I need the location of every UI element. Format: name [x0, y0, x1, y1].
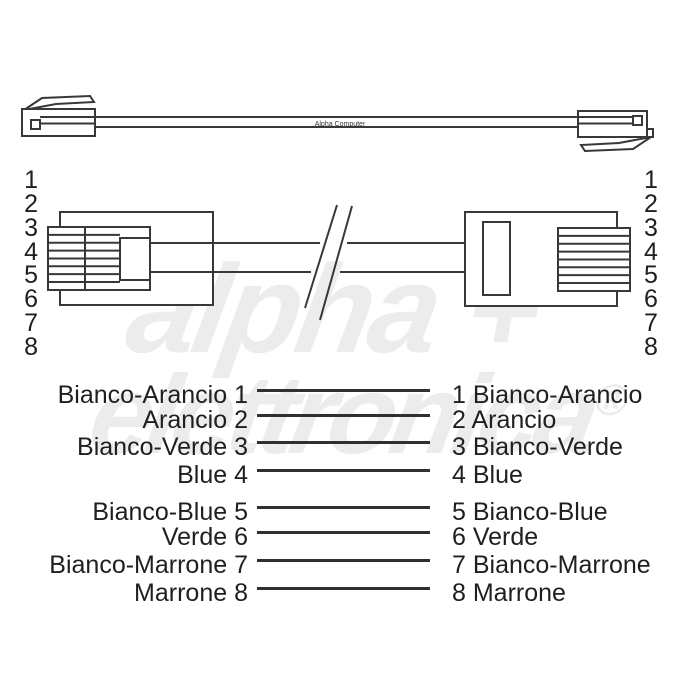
rj45-connector-right-top-view: [465, 212, 630, 306]
wire-label-right: 4 Blue: [452, 460, 523, 490]
pin-numbers-left: 1 2 3 4 5 6 7 8: [14, 169, 38, 360]
wire-label-left: Blue 4: [0, 460, 248, 490]
wire-label-left: Bianco-Marrone 7: [0, 550, 248, 580]
wire-label-left: Marrone 8: [0, 578, 248, 608]
wire-connection-line: [257, 559, 430, 562]
pin-numbers-right: 1 2 3 4 5 6 7 8: [644, 169, 668, 360]
rj45-cable-pinout-diagram: alpha + elettronica®: [0, 0, 700, 700]
wire-connection-line: [257, 389, 430, 392]
wire-connection-line: [257, 531, 430, 534]
latch-window-right: [483, 222, 510, 295]
plug-step-right: [647, 129, 653, 137]
wire-connection-line: [257, 587, 430, 590]
latch-clip-right: [581, 137, 651, 151]
pinout-schematic: [48, 205, 630, 320]
pin-number: 8: [14, 336, 38, 360]
rj45-connector-left-top-view: [48, 212, 213, 305]
connector-pins-right: [558, 236, 630, 283]
wire-label-right: 6 Verde: [452, 522, 538, 552]
cable-brand-label: Alpha Computer: [315, 121, 366, 128]
wire-label-right: 7 Bianco-Marrone: [452, 550, 651, 580]
wire-label-right: 8 Marrone: [452, 578, 566, 608]
wire-label-right: 3 Bianco-Verde: [452, 432, 623, 462]
latch-clip-left: [24, 96, 94, 110]
wire-connection-line: [257, 441, 430, 444]
wire-label-left: Verde 6: [0, 522, 248, 552]
rj45-plug-left-side-view: [22, 96, 95, 136]
pin-number: 3: [644, 217, 668, 241]
pin-number: 8: [644, 336, 668, 360]
rj45-plug-right-side-view: [578, 111, 653, 151]
wire-label-left: Arancio 2: [0, 405, 248, 435]
pin-number: 3: [14, 217, 38, 241]
wire-connection-line: [257, 469, 430, 472]
wire-label-left: Bianco-Verde 3: [0, 432, 248, 462]
wire-label-right: 2 Arancio: [452, 405, 556, 435]
latch-window-left: [120, 238, 150, 280]
cable-assembly: Alpha Computer: [22, 96, 653, 151]
wire-connection-line: [257, 414, 430, 417]
wire-connection-line: [257, 506, 430, 509]
cable-break-icon: [305, 205, 352, 320]
